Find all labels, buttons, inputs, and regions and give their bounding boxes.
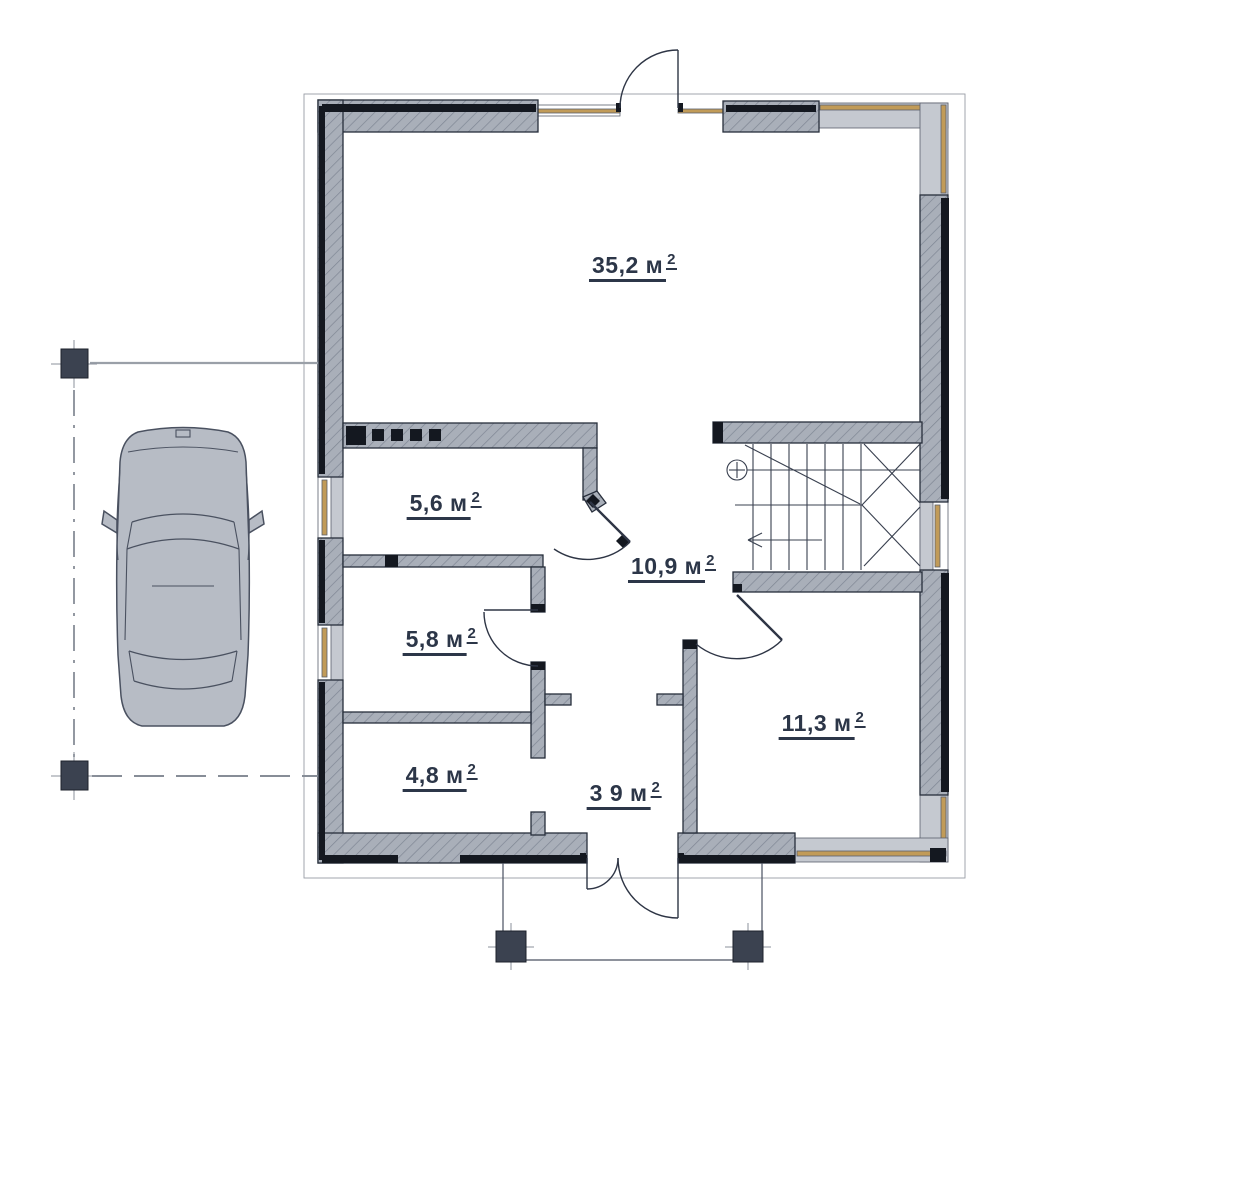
window-top-strip: [537, 105, 620, 116]
door-top-entry: [620, 50, 678, 108]
stair-direction-arrow: [748, 533, 822, 547]
room-label-35-2: 35,2 м2: [589, 252, 677, 279]
door-room-5-8: [484, 610, 538, 666]
exterior-walls: [318, 100, 948, 863]
window-left-2: [318, 625, 343, 680]
room-label-3-9: 3 9 м2: [587, 780, 662, 807]
windows-group: [318, 103, 948, 862]
carport-column-bottom: [61, 761, 88, 790]
room-label-5-8: 5,8 м2: [403, 626, 478, 653]
insulation-bands: [319, 104, 949, 863]
room-label-5-6: 5,6 м2: [407, 490, 482, 517]
porch-column-right: [733, 931, 763, 962]
door-room-11-3: [696, 595, 782, 659]
porch-column-left: [496, 931, 526, 962]
porch: [488, 863, 771, 970]
carport-column-top: [61, 349, 88, 378]
floor-plan-canvas: 35,2 м2 5,6 м2 5,8 м2 4,8 м2 10,9 м2 3 9…: [0, 0, 1240, 1195]
corner-window-bottom-right: [795, 795, 948, 862]
room-label-4-8: 4,8 м2: [403, 762, 478, 789]
window-top-threshold: [678, 109, 724, 113]
vent-shaft-block: [346, 426, 366, 445]
window-right-mid: [920, 502, 948, 570]
room-label-10-9: 10,9 м2: [628, 553, 716, 580]
door-bottom-entry: [587, 858, 678, 918]
corner-window-top-right: [818, 103, 948, 195]
staircase: [727, 444, 920, 570]
car-icon: [102, 428, 264, 727]
window-left-1: [318, 477, 343, 538]
room-label-11-3: 11,3 м2: [779, 710, 866, 737]
car-mirror-right: [249, 511, 264, 533]
car-mirror-left: [102, 511, 117, 533]
building-offset-outline: [304, 94, 965, 878]
floor-plan-drawing: [0, 0, 1240, 1195]
